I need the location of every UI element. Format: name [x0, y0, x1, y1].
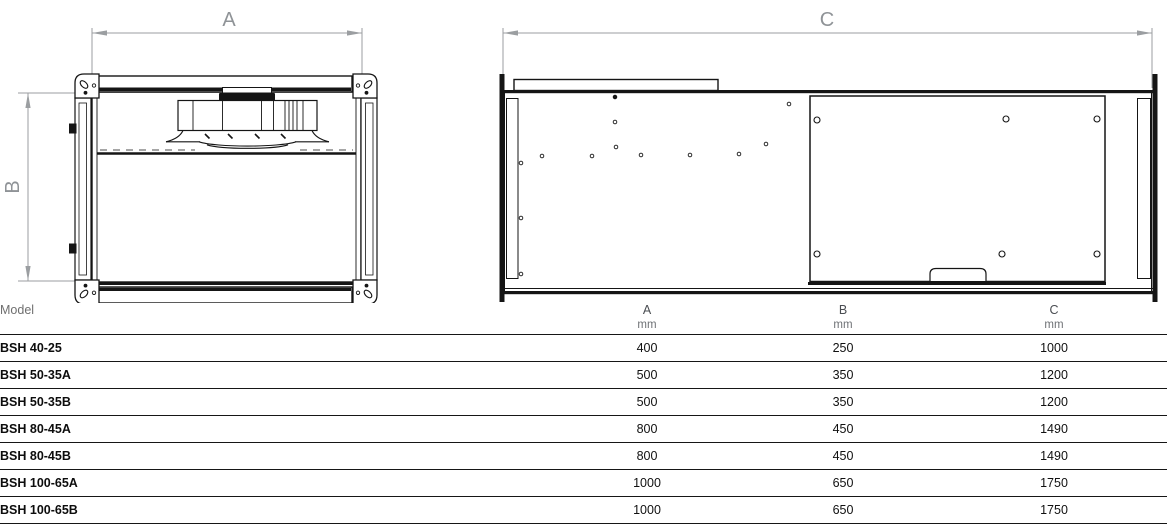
value-cell-c: 1000: [941, 335, 1167, 362]
arrow-left-icon: [92, 30, 107, 35]
column-header-b: B: [745, 303, 941, 319]
arrow-down-icon: [25, 266, 30, 281]
value-cell-c: 1750: [941, 470, 1167, 497]
access-panel: [808, 96, 1106, 284]
value-cell-a: 400: [549, 335, 745, 362]
duct-flange-right: [1153, 74, 1158, 302]
table-row: BSH 40-25 400 250 1000: [0, 335, 1167, 362]
value-cell-b: 650: [745, 470, 941, 497]
unit-label: mm: [941, 319, 1167, 335]
technical-drawing: A B: [0, 0, 1167, 303]
arrow-up-icon: [25, 93, 30, 108]
model-cell: BSH 50-35B: [0, 389, 549, 416]
value-cell-c: 1490: [941, 416, 1167, 443]
model-cell: BSH 100-65A: [0, 470, 549, 497]
panel-handle: [930, 269, 986, 282]
rivets: [519, 95, 791, 276]
value-cell-a: 500: [549, 362, 745, 389]
value-cell-c: 1750: [941, 497, 1167, 524]
value-cell-b: 350: [745, 362, 941, 389]
model-cell: BSH 50-35A: [0, 362, 549, 389]
arrow-left-icon: [503, 30, 518, 35]
table-row: BSH 50-35A 500 350 1200: [0, 362, 1167, 389]
model-cell: BSH 100-65B: [0, 497, 549, 524]
model-cell: BSH 80-45B: [0, 443, 549, 470]
dimension-label-b: B: [2, 180, 24, 193]
arrow-right-icon: [1137, 30, 1152, 35]
value-cell-b: 450: [745, 416, 941, 443]
value-cell-a: 1000: [549, 497, 745, 524]
value-cell-b: 450: [745, 443, 941, 470]
arrow-right-icon: [347, 30, 362, 35]
dimensions-table: Model A B C mm mm mm BSH 40-25 400 250 1…: [0, 303, 1167, 524]
duct-flange-left: [500, 74, 505, 302]
table-row: BSH 80-45B 800 450 1490: [0, 443, 1167, 470]
top-flange: [514, 80, 718, 91]
motor-mount: [219, 93, 275, 101]
column-header-a: A: [549, 303, 745, 319]
value-cell-b: 650: [745, 497, 941, 524]
unit-label: mm: [549, 319, 745, 335]
value-cell-c: 1490: [941, 443, 1167, 470]
value-cell-b: 350: [745, 389, 941, 416]
table-row: BSH 100-65B 1000 650 1750: [0, 497, 1167, 524]
model-cell: BSH 80-45A: [0, 416, 549, 443]
side-casing: [500, 74, 1158, 302]
latch-clip: [70, 124, 77, 133]
value-cell-a: 500: [549, 389, 745, 416]
dimension-label-c: C: [820, 9, 834, 31]
model-cell: BSH 40-25: [0, 335, 549, 362]
value-cell-a: 800: [549, 416, 745, 443]
dimension-label-a: A: [222, 9, 236, 31]
model-column-header: Model: [0, 303, 549, 335]
fan-dimensions-sheet: A B: [0, 0, 1167, 526]
front-view-drawing: A B: [2, 9, 377, 303]
table-row: BSH 80-45A 800 450 1490: [0, 416, 1167, 443]
value-cell-a: 1000: [549, 470, 745, 497]
dimensions-table-area: Model A B C mm mm mm BSH 40-25 400 250 1…: [0, 303, 1167, 524]
table-row: BSH 100-65A 1000 650 1750: [0, 470, 1167, 497]
value-cell-c: 1200: [941, 362, 1167, 389]
unit-label: mm: [745, 319, 941, 335]
value-cell-c: 1200: [941, 389, 1167, 416]
latch-clip: [70, 244, 77, 253]
value-cell-b: 250: [745, 335, 941, 362]
value-cell-a: 800: [549, 443, 745, 470]
table-row: BSH 50-35B 500 350 1200: [0, 389, 1167, 416]
column-header-c: C: [941, 303, 1167, 319]
side-view-drawing: C: [500, 9, 1158, 302]
